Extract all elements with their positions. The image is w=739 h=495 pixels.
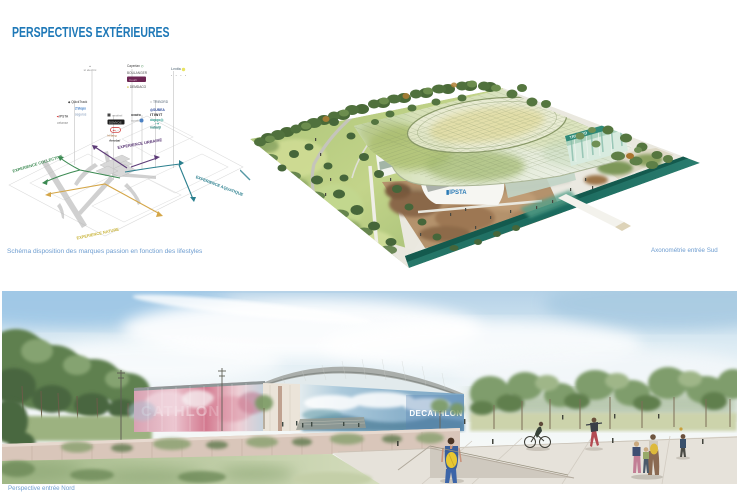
svg-text:Courir: Courir xyxy=(129,78,137,82)
svg-text:aquatic: aquatic xyxy=(131,119,140,123)
svg-text:st electric: st electric xyxy=(84,68,97,72)
svg-text:BOULANGER: BOULANGER xyxy=(127,71,148,75)
svg-text:Lextia: Lextia xyxy=(171,67,181,71)
svg-text:◄IPSTA: ◄IPSTA xyxy=(56,115,69,119)
svg-text:●●: ●● xyxy=(113,129,117,132)
svg-text:DOMYOS: DOMYOS xyxy=(109,121,122,125)
svg-text:cetanse: cetanse xyxy=(57,121,68,125)
svg-text:EXPERIENCE URBAINE: EXPERIENCE URBAINE xyxy=(117,137,163,150)
svg-text:◎SUBEA: ◎SUBEA xyxy=(150,108,165,112)
svg-text:● DEMDACO: ● DEMDACO xyxy=(127,85,147,89)
svg-text:▪ ▪ ▪ ▪: ▪ ▪ ▪ ▪ xyxy=(171,74,188,78)
svg-text:seguros: seguros xyxy=(75,113,87,117)
svg-text:Aerobal: Aerobal xyxy=(108,139,120,143)
svg-text:□ TRIBORD: □ TRIBORD xyxy=(150,100,169,104)
svg-text:▮IPSTA: ▮IPSTA xyxy=(446,190,467,196)
svg-text:◆ QuickTrack: ◆ QuickTrack xyxy=(68,100,88,104)
svg-text:2'steps: 2'steps xyxy=(75,107,86,111)
svg-text:ITIWIT: ITIWIT xyxy=(150,113,163,117)
svg-text:Caperlan ◴: Caperlan ◴ xyxy=(127,64,144,68)
svg-text:newfeel: newfeel xyxy=(112,114,123,118)
svg-text:helang: helang xyxy=(108,134,117,138)
svg-text:oxaéo: oxaéo xyxy=(131,113,141,117)
svg-text:oupqo◎: oupqo◎ xyxy=(150,118,163,122)
svg-text:EXPERIENCE NATURE: EXPERIENCE NATURE xyxy=(76,227,120,241)
svg-text:EXPERIENCE AQUATIQUE: EXPERIENCE AQUATIQUE xyxy=(195,174,244,197)
svg-text:nabaiji: nabaiji xyxy=(150,126,161,130)
